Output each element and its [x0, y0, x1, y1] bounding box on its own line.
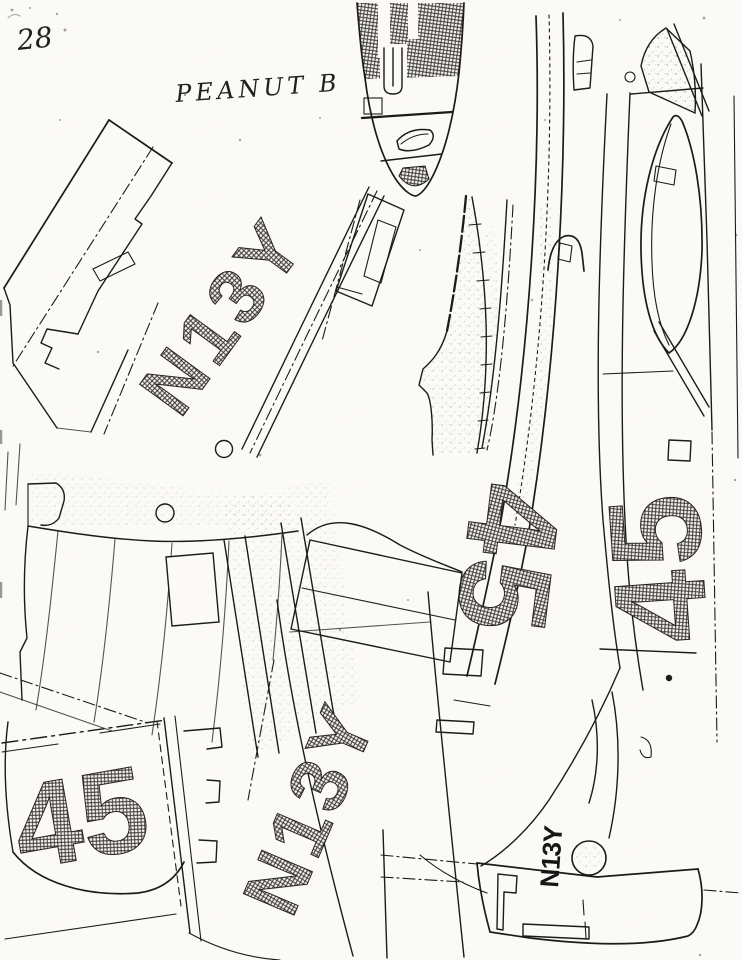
- model-plan-drawing: 28 PEANUT B N13Y: [0, 0, 742, 960]
- rigging-dot: [666, 675, 672, 681]
- race-number-fuselage-right: 45: [580, 486, 736, 648]
- spar-slot: [166, 553, 219, 626]
- race-number-wing: 45: [3, 740, 158, 895]
- race-number-fuselage-left: 45: [428, 477, 588, 644]
- registration-tail: N13Y: [534, 825, 568, 889]
- page-number: 28: [14, 20, 54, 57]
- plan-sheet-page: 28 PEANUT B N13Y: [0, 0, 742, 960]
